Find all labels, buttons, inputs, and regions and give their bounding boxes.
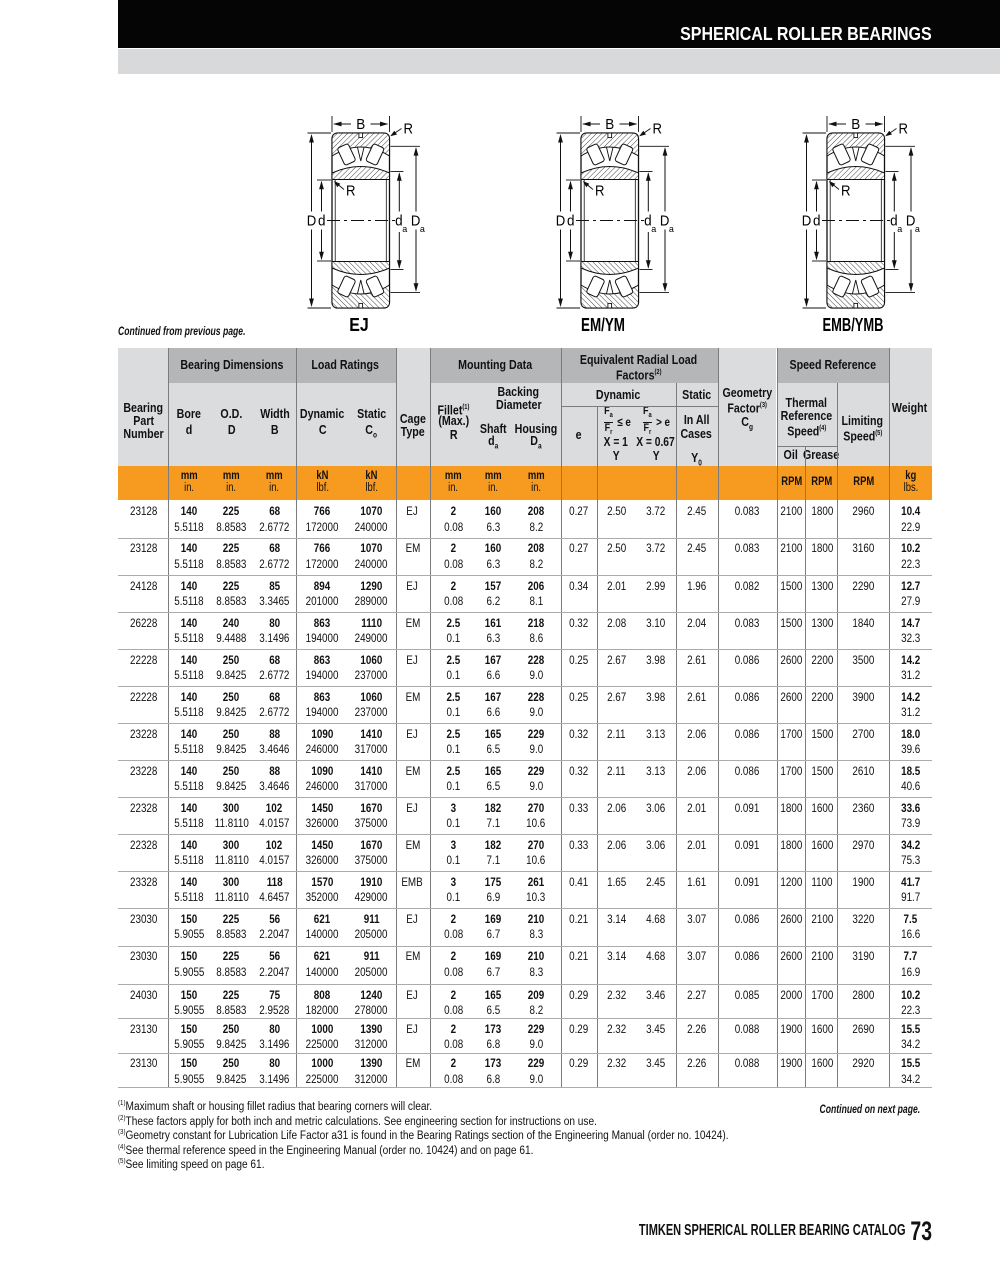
svg-text:EJ: EJ	[349, 315, 369, 335]
svg-text:EM/YM: EM/YM	[581, 315, 625, 335]
svg-text:EMB/YMB: EMB/YMB	[823, 315, 884, 335]
